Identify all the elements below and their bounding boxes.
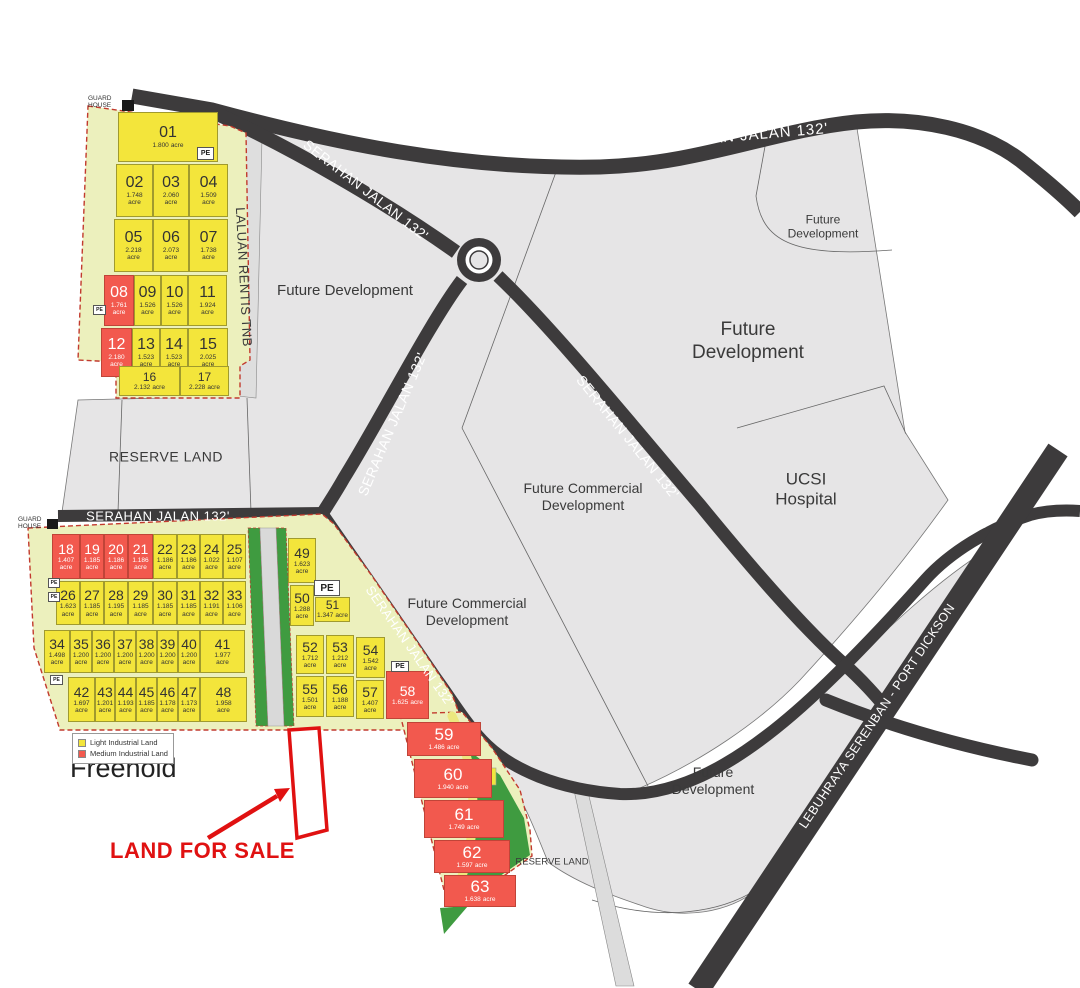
lot-53: 531.212acre	[326, 635, 354, 674]
lot-number: 46	[160, 685, 176, 699]
acre-unit: acre	[467, 824, 480, 831]
lot-acreage: 1.200	[181, 652, 197, 659]
lot-acreage: 1.185	[132, 603, 148, 610]
lot-55: 551.501acre	[296, 676, 324, 717]
land-for-sale-lot	[289, 728, 327, 838]
pe-box-cluster-b1: PE	[48, 578, 60, 588]
lot-acreage: 1.185	[84, 603, 100, 610]
lot-24: 241.022acre	[200, 534, 223, 579]
lot-acreage: 1.106	[226, 603, 242, 610]
lot-acreage: 2.025	[200, 354, 216, 361]
acre-unit: acre	[152, 384, 165, 391]
acre-unit: acre	[228, 564, 241, 571]
lot-acreage: 1.940	[438, 784, 454, 791]
lot-number: 22	[157, 542, 173, 556]
acre-unit: acre	[75, 707, 88, 714]
acre-unit: acre	[171, 142, 184, 149]
lot-number: 24	[204, 542, 220, 556]
lot-acreage: 1.200	[138, 652, 154, 659]
lot-number: 10	[166, 285, 184, 301]
lot-acreage: 1.501	[302, 697, 318, 704]
lot-number: 27	[84, 588, 100, 602]
label-future-development-ne: Future Development	[778, 213, 868, 242]
lot-number: 17	[198, 371, 211, 383]
lot-acreage: 2.180	[108, 354, 124, 361]
acre-unit: acre	[304, 704, 317, 711]
acre-unit: acre	[140, 659, 153, 666]
pe-box-cluster-a2: PE	[93, 305, 106, 315]
lot-number: 43	[97, 685, 113, 699]
acre-unit: acre	[304, 662, 317, 669]
lot-02: 021.748acre	[116, 164, 153, 217]
lot-49: 491.623acre	[288, 538, 316, 583]
lot-number: 14	[165, 337, 183, 353]
acre-unit: acre	[334, 662, 347, 669]
guard-house-north	[122, 100, 134, 111]
lot-63: 631.638acre	[444, 875, 516, 907]
lot-acreage: 2.132	[134, 384, 150, 391]
acre-unit: acre	[99, 707, 112, 714]
lot-number: 06	[162, 230, 180, 246]
lot-59: 591.486acre	[407, 722, 481, 756]
label-future-commercial-2: Future Commercial Development	[392, 595, 542, 629]
acre-unit: acre	[334, 704, 347, 711]
lot-44: 441.193acre	[115, 677, 136, 722]
acre-unit: acre	[410, 699, 423, 706]
acre-unit: acre	[447, 744, 460, 751]
lot-number: 30	[157, 588, 173, 602]
lot-39: 391.200acre	[157, 630, 178, 673]
acre-unit: acre	[51, 659, 64, 666]
lot-50: 501.288acre	[290, 585, 314, 626]
acre-unit: acre	[134, 611, 147, 618]
lot-52: 521.712acre	[296, 635, 324, 674]
acre-unit: acre	[217, 707, 230, 714]
lot-acreage: 1.201	[97, 700, 113, 707]
lot-48: 481.958acre	[200, 677, 247, 722]
lot-number: 62	[463, 844, 482, 861]
lot-51: 511.347acre	[315, 597, 350, 622]
lot-acreage: 1.486	[429, 744, 445, 751]
lot-08: 081.761acre	[104, 275, 134, 326]
lot-acreage: 1.212	[332, 655, 348, 662]
lot-acreage: 1.498	[49, 652, 65, 659]
legend-medium-label: Medium Industrial Land	[90, 748, 168, 759]
acre-unit: acre	[201, 309, 214, 316]
lot-34: 341.498acre	[44, 630, 70, 673]
lot-acreage: 1.022	[203, 557, 219, 564]
label-future-development-south: Future Development	[658, 764, 768, 798]
lot-23: 231.186acre	[177, 534, 200, 579]
acre-unit: acre	[113, 309, 126, 316]
lot-number: 03	[162, 175, 180, 191]
lot-number: 08	[110, 285, 128, 301]
label-guard-house-north: GUARD HOUSE	[88, 95, 122, 110]
lot-31: 311.185acre	[177, 581, 200, 625]
lot-acreage: 1.185	[84, 557, 100, 564]
roundabout	[457, 238, 501, 282]
lot-46: 461.178acre	[157, 677, 178, 722]
legend-swatch-medium	[78, 750, 86, 758]
lot-04: 041.509acre	[189, 164, 228, 217]
acre-unit: acre	[364, 665, 377, 672]
lot-32: 321.191acre	[200, 581, 223, 625]
lot-number: 15	[199, 337, 217, 353]
acre-unit: acre	[165, 199, 178, 206]
pe-box-cluster-c: PE	[314, 580, 340, 596]
legend-light-industrial: Light Industrial Land	[78, 737, 168, 748]
lot-acreage: 1.542	[362, 658, 378, 665]
lot-number: 20	[108, 542, 124, 556]
lot-10: 101.526acre	[161, 275, 188, 326]
lot-number: 25	[227, 542, 243, 556]
lot-acreage: 1.958	[215, 700, 231, 707]
lot-number: 39	[160, 637, 176, 651]
acre-unit: acre	[205, 564, 218, 571]
lot-number: 55	[302, 682, 318, 696]
acre-unit: acre	[127, 254, 140, 261]
lot-acreage: 1.186	[157, 557, 173, 564]
lot-number: 04	[200, 175, 218, 191]
lot-03: 032.060acre	[153, 164, 189, 217]
lot-29: 291.185acre	[128, 581, 153, 625]
lot-33: 331.106acre	[223, 581, 246, 625]
acre-unit: acre	[182, 611, 195, 618]
lot-acreage: 1.200	[159, 652, 175, 659]
lot-number: 41	[215, 637, 231, 651]
lot-47: 471.173acre	[178, 677, 200, 722]
label-ucsi-hospital: UCSI Hospital	[761, 470, 851, 511]
lot-number: 53	[332, 640, 348, 654]
lot-number: 31	[181, 588, 197, 602]
lot-number: 16	[143, 371, 156, 383]
lot-27: 271.185acre	[80, 581, 104, 625]
lot-acreage: 1.185	[180, 603, 196, 610]
lot-28: 281.195acre	[104, 581, 128, 625]
acre-unit: acre	[62, 611, 75, 618]
acre-unit: acre	[128, 199, 141, 206]
acre-unit: acre	[60, 564, 73, 571]
lot-number: 42	[74, 685, 90, 699]
lot-acreage: 1.191	[203, 603, 219, 610]
lot-number: 57	[362, 685, 378, 699]
lot-acreage: 1.738	[200, 247, 216, 254]
lot-acreage: 1.977	[214, 652, 230, 659]
acre-unit: acre	[183, 707, 196, 714]
lot-19: 191.185acre	[80, 534, 104, 579]
land-for-sale-arrow	[208, 796, 277, 838]
lot-number: 37	[117, 637, 133, 651]
lot-number: 13	[137, 337, 155, 353]
lot-acreage: 1.623	[294, 561, 310, 568]
lot-number: 58	[400, 684, 416, 698]
acre-unit: acre	[75, 659, 88, 666]
lot-acreage: 1.407	[58, 557, 74, 564]
lot-number: 34	[49, 637, 65, 651]
land-for-sale-arrowhead	[274, 788, 290, 802]
acre-unit: acre	[141, 309, 154, 316]
pe-box-cluster-b3: PE	[50, 675, 63, 685]
lot-60: 601.940acre	[414, 759, 492, 798]
acre-unit: acre	[202, 199, 215, 206]
lot-acreage: 1.200	[73, 652, 89, 659]
lot-acreage: 2.218	[125, 247, 141, 254]
lot-acreage: 1.188	[332, 697, 348, 704]
acre-unit: acre	[296, 568, 309, 575]
lot-acreage: 2.228	[189, 384, 205, 391]
acre-unit: acre	[86, 611, 99, 618]
lot-56: 561.188acre	[326, 676, 354, 717]
pe-box-cluster-a1: PE	[197, 147, 214, 160]
lot-number: 49	[294, 546, 310, 560]
lot-number: 32	[204, 588, 220, 602]
lot-57: 571.407acre	[356, 680, 384, 719]
lot-acreage: 1.625	[392, 699, 408, 706]
acre-unit: acre	[86, 564, 99, 571]
lot-09: 091.526acre	[134, 275, 161, 326]
lot-number: 40	[181, 637, 197, 651]
acre-unit: acre	[183, 659, 196, 666]
lot-number: 19	[84, 542, 100, 556]
lot-22: 221.186acre	[153, 534, 177, 579]
lot-acreage: 1.186	[108, 557, 124, 564]
lot-number: 18	[58, 542, 74, 556]
lot-number: 45	[139, 685, 155, 699]
acre-unit: acre	[182, 564, 195, 571]
lot-06: 062.073acre	[153, 219, 189, 272]
lot-acreage: 1.597	[457, 862, 473, 869]
lot-acreage: 1.638	[465, 896, 481, 903]
legend-swatch-light	[78, 739, 86, 747]
lot-18: 181.407acre	[52, 534, 80, 579]
lot-acreage: 1.186	[132, 557, 148, 564]
lot-number: 61	[455, 806, 474, 823]
lot-07: 071.738acre	[189, 219, 228, 272]
acre-unit: acre	[296, 613, 309, 620]
pe-box-cluster-d: PE	[391, 661, 409, 672]
acre-unit: acre	[216, 659, 229, 666]
lot-05: 052.218acre	[114, 219, 153, 272]
acre-unit: acre	[134, 564, 147, 571]
acre-unit: acre	[456, 784, 469, 791]
lot-number: 12	[108, 337, 126, 353]
lot-acreage: 1.749	[449, 824, 465, 831]
label-future-commercial-1: Future Commercial Development	[508, 480, 658, 514]
lot-number: 47	[181, 685, 197, 699]
lot-number: 28	[108, 588, 124, 602]
acre-unit: acre	[110, 611, 123, 618]
lot-number: 63	[471, 878, 490, 895]
lot-45: 451.185acre	[136, 677, 157, 722]
green-tip-south	[440, 906, 468, 934]
lot-number: 59	[435, 726, 454, 743]
lot-acreage: 1.748	[126, 192, 142, 199]
acre-unit: acre	[475, 862, 488, 869]
lot-40: 401.200acre	[178, 630, 200, 673]
lot-number: 01	[159, 125, 177, 141]
lot-41: 411.977acre	[200, 630, 245, 673]
lot-61: 611.749acre	[424, 800, 504, 838]
lot-number: 60	[444, 766, 463, 783]
lot-acreage: 1.347	[317, 612, 333, 619]
lot-number: 36	[95, 637, 111, 651]
acre-unit: acre	[119, 707, 132, 714]
lot-acreage: 1.200	[95, 652, 111, 659]
lot-number: 33	[227, 588, 243, 602]
acre-unit: acre	[159, 611, 172, 618]
acre-unit: acre	[335, 612, 348, 619]
lot-acreage: 1.623	[60, 603, 76, 610]
lot-acreage: 1.509	[200, 192, 216, 199]
lot-21: 211.186acre	[128, 534, 153, 579]
lot-acreage: 2.073	[163, 247, 179, 254]
lot-20: 201.186acre	[104, 534, 128, 579]
lot-acreage: 1.200	[117, 652, 133, 659]
lot-16: 162.132acre	[119, 366, 180, 396]
acre-unit: acre	[159, 564, 172, 571]
lot-acreage: 1.178	[159, 700, 175, 707]
lot-number: 44	[118, 685, 134, 699]
acre-unit: acre	[161, 707, 174, 714]
acre-unit: acre	[207, 384, 220, 391]
legend-light-label: Light Industrial Land	[90, 737, 158, 748]
lot-43: 431.201acre	[95, 677, 115, 722]
lot-42: 421.697acre	[68, 677, 95, 722]
acre-unit: acre	[140, 707, 153, 714]
lot-acreage: 1.288	[294, 606, 310, 613]
lot-number: 51	[326, 599, 339, 611]
acre-unit: acre	[483, 896, 496, 903]
label-guard-house-south: GUARD HOUSE	[18, 516, 52, 531]
pe-box-cluster-b2: PE	[48, 592, 60, 602]
acre-unit: acre	[165, 254, 178, 261]
acre-unit: acre	[110, 564, 123, 571]
lot-number: 52	[302, 640, 318, 654]
acre-unit: acre	[119, 659, 132, 666]
lot-acreage: 1.173	[181, 700, 197, 707]
lot-acreage: 1.924	[199, 302, 215, 309]
lot-number: 56	[332, 682, 348, 696]
lot-acreage: 1.800	[153, 142, 169, 149]
lot-37: 371.200acre	[114, 630, 136, 673]
lot-number: 48	[216, 685, 232, 699]
lot-acreage: 1.526	[139, 302, 155, 309]
lot-number: 21	[133, 542, 149, 556]
lot-36: 361.200acre	[92, 630, 114, 673]
acre-unit: acre	[202, 254, 215, 261]
label-future-development-east: Future Development	[668, 319, 828, 365]
lot-acreage: 1.195	[108, 603, 124, 610]
lot-acreage: 1.761	[111, 302, 127, 309]
lot-number: 09	[139, 285, 157, 301]
lot-25: 251.107acre	[223, 534, 246, 579]
lot-acreage: 1.526	[166, 302, 182, 309]
label-reserve-land-south: RESERVE LAND	[515, 856, 588, 867]
lot-number: 26	[60, 588, 76, 602]
site-plan-map: SERAHAN JALAN 132' SERAHAN JALAN 132' SE…	[0, 0, 1080, 988]
acre-unit: acre	[97, 659, 110, 666]
lot-54: 541.542acre	[356, 637, 385, 678]
label-land-for-sale: LAND FOR SALE	[110, 838, 295, 864]
lot-acreage: 1.523	[138, 354, 154, 361]
lot-number: 38	[139, 637, 155, 651]
lot-acreage: 1.712	[302, 655, 318, 662]
lot-acreage: 1.407	[362, 700, 378, 707]
lot-acreage: 1.185	[157, 603, 173, 610]
lot-number: 29	[133, 588, 149, 602]
acre-unit: acre	[364, 707, 377, 714]
label-reserve-land-north: RESERVE LAND	[109, 449, 223, 466]
lot-number: 50	[294, 591, 310, 605]
lot-number: 11	[199, 285, 216, 301]
lot-acreage: 1.107	[226, 557, 242, 564]
lot-number: 07	[200, 230, 218, 246]
map-legend: Light Industrial Land Medium Industrial …	[72, 733, 174, 764]
lot-number: 05	[125, 230, 143, 246]
acre-unit: acre	[205, 611, 218, 618]
lot-number: 35	[73, 637, 89, 651]
lot-number: 02	[126, 175, 144, 191]
acre-unit: acre	[228, 611, 241, 618]
lot-number: 23	[181, 542, 197, 556]
lot-acreage: 2.060	[163, 192, 179, 199]
lot-17: 172.228acre	[180, 366, 229, 396]
lot-acreage: 1.697	[73, 700, 89, 707]
acre-unit: acre	[168, 309, 181, 316]
lot-11: 111.924acre	[188, 275, 227, 326]
lot-30: 301.185acre	[153, 581, 177, 625]
road-label-serahan-west: SERAHAN JALAN 132'	[86, 509, 230, 524]
lot-acreage: 1.523	[166, 354, 182, 361]
lot-35: 351.200acre	[70, 630, 92, 673]
lot-38: 381.200acre	[136, 630, 157, 673]
lot-62: 621.597acre	[434, 840, 510, 873]
acre-unit: acre	[161, 659, 174, 666]
lot-acreage: 1.193	[117, 700, 133, 707]
label-future-development-west: Future Development	[277, 282, 413, 300]
lot-acreage: 1.186	[180, 557, 196, 564]
lot-acreage: 1.185	[138, 700, 154, 707]
legend-medium-industrial: Medium Industrial Land	[78, 748, 168, 759]
lot-number: 54	[363, 643, 379, 657]
